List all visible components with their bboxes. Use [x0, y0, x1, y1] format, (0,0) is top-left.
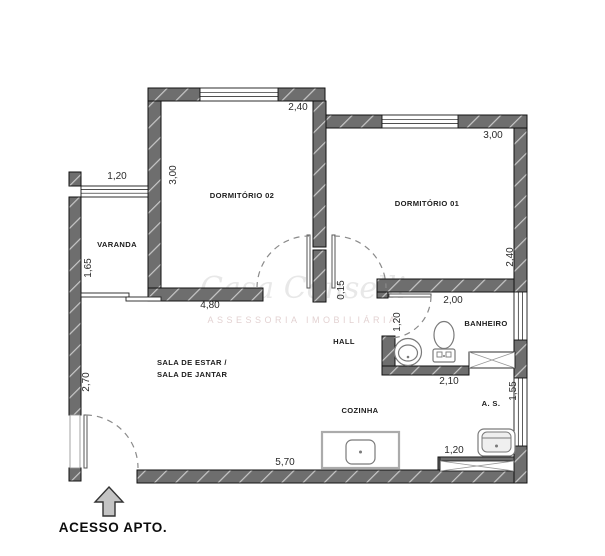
- entry-door-leaf: [84, 415, 87, 468]
- wall-banheiro-north: [377, 279, 514, 292]
- wall-se-corner: [514, 446, 527, 483]
- laundry-tank-drain: [495, 445, 498, 448]
- room-label-varanda: VARANDA: [97, 240, 137, 249]
- dorm02-door-leaf: [307, 235, 310, 288]
- dim-dorm02-window: 2,40: [288, 102, 308, 113]
- as-south-window-bar: [440, 457, 514, 461]
- sliding-panel: [126, 297, 161, 301]
- bathroom-sink-basin: [399, 345, 418, 361]
- dim-left-wall: 2,70: [81, 372, 92, 392]
- window-dorm01: [382, 115, 458, 128]
- wall-dorm01-top-left: [326, 115, 382, 128]
- room-label-dormitorio-02: DORMITÓRIO 02: [210, 191, 274, 200]
- wall-bottom: [137, 470, 514, 483]
- wall-dorm01-top-right: [458, 115, 527, 128]
- floor-plan-page: Casa Conselli ASSESSORIA IMOBILIÁRIA: [0, 0, 605, 556]
- room-label-hall: HALL: [333, 337, 355, 346]
- dim-dorm01-window: 3,00: [483, 130, 503, 141]
- toilet-dot: [443, 355, 445, 357]
- wall-dorm02-top-left: [148, 88, 200, 101]
- dim-banheiro-door: 1,20: [392, 312, 403, 332]
- wall-left-top-block: [69, 172, 81, 186]
- bathroom-sink-drain: [407, 356, 410, 359]
- entry-door-arc: [86, 415, 138, 468]
- wall-right-mid-block: [514, 340, 527, 378]
- entry-marker: ACESSO APTO.: [59, 487, 167, 535]
- dim-dorm01-depth: 2,40: [505, 247, 516, 267]
- room-label-sala-line1: SALA DE ESTAR /: [157, 358, 227, 367]
- room-label-cozinha: COZINHA: [341, 406, 378, 415]
- entry-label: ACESSO APTO.: [59, 520, 167, 535]
- wall-dorm02-left: [148, 101, 161, 301]
- wall-divider-upper: [313, 101, 326, 247]
- dim-as-window: 1,20: [444, 445, 464, 456]
- room-label-dormitorio-01: DORMITÓRIO 01: [395, 199, 460, 208]
- room-label-sala-line2: SALA DE JANTAR: [157, 370, 227, 379]
- dim-sala-width: 4,80: [200, 300, 220, 311]
- dim-wall-stub: 0,15: [336, 280, 347, 300]
- window-dorm02: [200, 88, 278, 101]
- entry-door-jamb: [70, 415, 80, 468]
- wall-banheiro-south: [382, 366, 469, 375]
- wall-left-bottom-block: [69, 468, 81, 481]
- wall-banheiro-door-jamb: [377, 292, 388, 298]
- entry-arrow-icon: [95, 487, 123, 516]
- room-label-area-servico: A. S.: [482, 399, 501, 408]
- dim-varanda-window: 1,20: [107, 171, 127, 182]
- kitchen-sink-drain: [359, 451, 362, 454]
- watermark-caps-text: ASSESSORIA IMOBILIÁRIA: [207, 315, 398, 325]
- dim-banheiro-bottom: 2,10: [439, 376, 459, 387]
- banheiro-door-leaf: [389, 294, 431, 297]
- dim-bottom-width: 5,70: [275, 457, 295, 468]
- window-banheiro: [514, 292, 527, 340]
- wall-divider-stub: [313, 250, 326, 302]
- dim-varanda-depth: 1,65: [83, 258, 94, 278]
- wall-dorm02-top-right: [278, 88, 325, 101]
- toilet-bowl: [434, 322, 454, 349]
- window-varanda: [81, 186, 148, 197]
- dorm01-door-leaf: [332, 235, 335, 288]
- floor-plan: Casa Conselli ASSESSORIA IMOBILIÁRIA: [0, 0, 605, 556]
- sliding-panel: [81, 293, 129, 297]
- laundry-tank-basin: [482, 432, 511, 452]
- wall-banheiro-west: [382, 336, 395, 366]
- dim-as-depth: 1,55: [508, 381, 519, 401]
- wall-left-main: [69, 197, 81, 415]
- dim-dorm02-depth: 3,00: [168, 165, 179, 185]
- room-label-banheiro: BANHEIRO: [464, 319, 507, 328]
- dim-banheiro-top: 2,00: [443, 295, 463, 306]
